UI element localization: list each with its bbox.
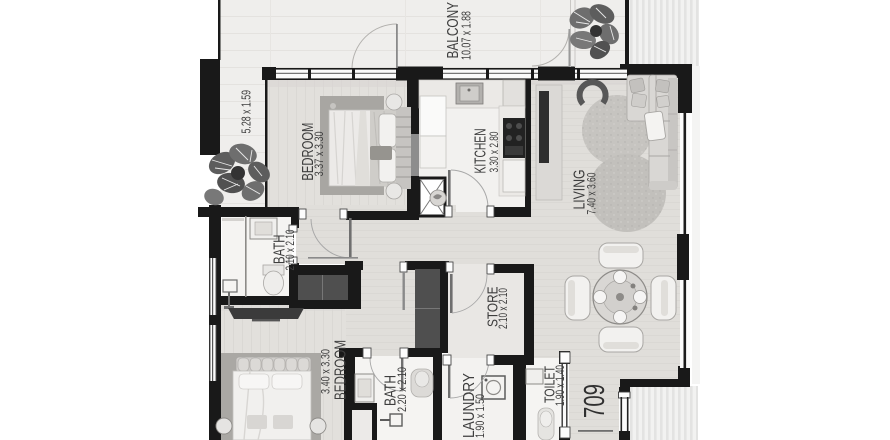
svg-text:2.10 x 2.10: 2.10 x 2.10 <box>283 229 297 270</box>
svg-text:10.07 x 1.88: 10.07 x 1.88 <box>460 11 474 60</box>
svg-text:BEDROOM: BEDROOM <box>333 340 350 400</box>
svg-text:3.30 x 2.80: 3.30 x 2.80 <box>487 131 501 172</box>
svg-text:5.28 x 1.59: 5.28 x 1.59 <box>240 90 254 134</box>
svg-text:709: 709 <box>579 384 611 418</box>
svg-text:3.37 x 3.30: 3.37 x 3.30 <box>312 131 326 176</box>
svg-text:1.90 x 1.40: 1.90 x 1.40 <box>553 365 567 406</box>
svg-text:7.40 x 3.60: 7.40 x 3.60 <box>585 172 599 214</box>
svg-text:3.40 x 3.30: 3.40 x 3.30 <box>319 349 333 394</box>
svg-text:1.90 x 1.50: 1.90 x 1.50 <box>473 394 487 438</box>
svg-text:2.10 x 2.10: 2.10 x 2.10 <box>496 288 510 329</box>
svg-text:2.20 x 2.10: 2.20 x 2.10 <box>395 367 409 412</box>
